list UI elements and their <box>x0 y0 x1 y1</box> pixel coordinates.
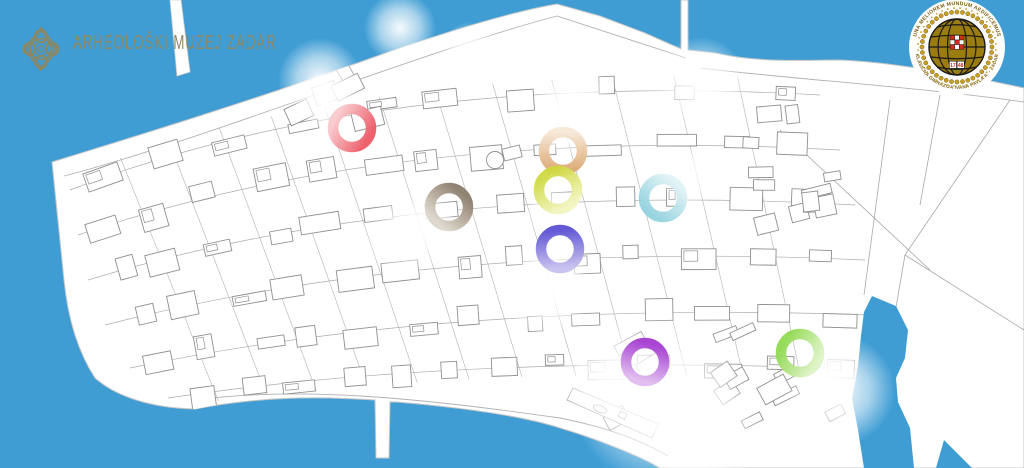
emblem-year-left: 17 <box>950 63 956 69</box>
school-emblem: UNA MELIOREM MUNDUM AEDIFICEMUS KLASIČNA… <box>906 0 1008 99</box>
museum-knot-logo-icon <box>21 25 61 73</box>
map-screen: ARHEOLOŠKI MUZEJ ZADAR UNA MELIOREM MUND… <box>0 0 1024 468</box>
emblem-year: 17 48 <box>949 61 964 69</box>
emblem-checkerboard <box>950 35 964 49</box>
emblem-year-right: 48 <box>958 63 964 69</box>
header: ARHEOLOŠKI MUZEJ ZADAR <box>0 0 400 90</box>
museum-title: ARHEOLOŠKI MUZEJ ZADAR <box>73 32 277 55</box>
